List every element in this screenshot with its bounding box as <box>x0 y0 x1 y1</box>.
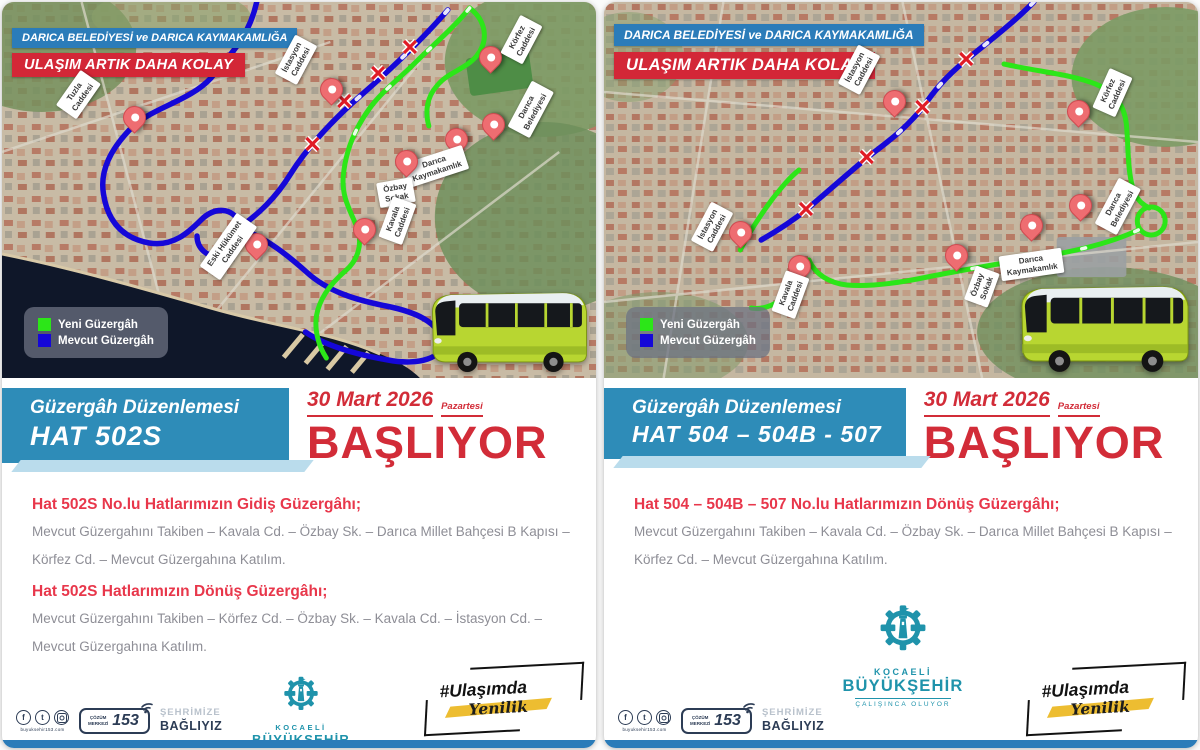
start-date: 30 Mart 2026 <box>307 388 433 417</box>
announcement-banner: Güzergâh Düzenlemesi HAT 504 – 504B - 50… <box>604 378 1198 470</box>
instagram-icon <box>54 710 69 725</box>
flyer-hat-504-504b-507: DARICA BELEDİYESİ ve DARICA KAYMAKAMLIĞA… <box>604 2 1198 748</box>
new-route-swatch <box>640 318 653 331</box>
call-center-number: 153 <box>714 713 741 729</box>
facebook-icon: f <box>618 710 633 725</box>
new-route-swatch <box>38 318 51 331</box>
call-center-label: ÇÖZÜM MERKEZİ <box>88 715 108 726</box>
flyer-hat-502s: DARICA BELEDİYESİ ve DARICA KAYMAKAMLIĞA… <box>2 2 596 748</box>
route-map-502s: DARICA BELEDİYESİ ve DARICA KAYMAKAMLIĞA… <box>2 2 596 378</box>
legend-existing-label: Mevcut Güzergâh <box>58 335 154 347</box>
start-date-block: 30 Mart 2026 Pazartesi BAŞLIYOR <box>924 388 1165 465</box>
kocaeli-logo-icon <box>868 595 938 665</box>
starting-label: BAŞLIYOR <box>924 420 1165 465</box>
start-weekday: Pazartesi <box>441 401 483 417</box>
route-banner-box: Güzergâh Düzenlemesi HAT 502S <box>2 388 289 463</box>
bus-illustration <box>1016 277 1194 376</box>
footer-city-line1: ŞEHRİMİZE <box>160 708 222 719</box>
announcement-banner: Güzergâh Düzenlemesi HAT 502S 30 Mart 20… <box>2 378 596 470</box>
existing-route-swatch <box>38 334 51 347</box>
twitter-icon: t <box>35 710 50 725</box>
footer: f t buyuksehir153.com ÇÖZÜM MERKEZİ 153 … <box>2 708 222 734</box>
existing-route-swatch <box>640 334 653 347</box>
section-body: Mevcut Güzergahını Takiben – Kavala Cd. … <box>634 518 1172 573</box>
footer-city-line2: BAĞLIYIZ <box>160 719 222 733</box>
facebook-icon: f <box>16 710 31 725</box>
logo-city-name: KOCAELİ <box>275 723 326 732</box>
slogan-banner: ULAŞIM ARTIK DAHA KOLAY <box>614 52 875 79</box>
starting-label: BAŞLIYOR <box>307 420 548 465</box>
footer-city-line2: BAĞLIYIZ <box>762 719 824 733</box>
start-date-block: 30 Mart 2026 Pazartesi BAŞLIYOR <box>307 388 548 465</box>
section-heading: Hat 502S Hatlarımızın Dönüş Güzergâhı; <box>32 583 570 601</box>
start-date: 30 Mart 2026 <box>924 388 1050 417</box>
start-weekday: Pazartesi <box>1058 401 1100 417</box>
bus-illustration <box>427 284 592 376</box>
kocaeli-logo-icon <box>275 669 327 721</box>
call-center-number: 153 <box>112 713 139 729</box>
logo-city-name: KOCAELİ <box>874 667 932 677</box>
call-center-label: ÇÖZÜM MERKEZİ <box>690 715 710 726</box>
municipality-banner: DARICA BELEDİYESİ ve DARICA KAYMAKAMLIĞA <box>614 24 924 46</box>
wifi-signal-icon <box>742 702 756 714</box>
section-body: Mevcut Güzergahını Takiben – Körfez Cd. … <box>32 605 570 660</box>
chevron-icon: » <box>454 704 461 718</box>
twitter-icon: t <box>637 710 652 725</box>
slogan-banner: ULAŞIM ARTIK DAHA KOLAY <box>12 53 245 77</box>
footer: f t buyuksehir153.com ÇÖZÜM MERKEZİ 153 … <box>604 708 824 734</box>
section-heading: Hat 504 – 504B – 507 No.lu Hatlarımızın … <box>634 496 1172 514</box>
instagram-icon <box>656 710 671 725</box>
section-heading: Hat 502S No.lu Hatlarımızın Gidiş Güzerg… <box>32 496 570 514</box>
section-body: Mevcut Güzergahını Takiben – Kavala Cd. … <box>32 518 570 573</box>
route-code: HAT 504 – 504B - 507 <box>632 421 882 448</box>
call-center-badge: ÇÖZÜM MERKEZİ 153 <box>681 708 752 734</box>
logo-tagline: ÇALIŞINCA OLUYOR <box>855 698 950 708</box>
banner-title: Güzergâh Düzenlemesi <box>632 397 882 419</box>
legend-new-label: Yeni Güzergâh <box>58 319 138 331</box>
banner-title: Güzergâh Düzenlemesi <box>30 397 265 419</box>
legend-new-label: Yeni Güzergâh <box>660 319 740 331</box>
map-legend: Yeni Güzergâh Mevcut Güzergâh <box>626 307 770 358</box>
municipality-banner: DARICA BELEDİYESİ ve DARICA KAYMAKAMLIĞA <box>12 28 297 48</box>
hashtag-badge: #Ulaşımda » Yenilik <box>1026 664 1185 734</box>
legend-existing-label: Mevcut Güzergâh <box>660 335 756 347</box>
map-legend: Yeni Güzergâh Mevcut Güzergâh <box>24 307 168 358</box>
route-code: HAT 502S <box>30 421 265 452</box>
wifi-signal-icon <box>140 702 154 714</box>
logo-muni-name: BÜYÜKŞEHİR <box>842 677 963 696</box>
footer-url: buyuksehir153.com <box>622 727 666 732</box>
route-banner-box: Güzergâh Düzenlemesi HAT 504 – 504B - 50… <box>604 388 906 459</box>
page: DARICA BELEDİYESİ ve DARICA KAYMAKAMLIĞA… <box>0 0 1200 750</box>
footer-city-line1: ŞEHRİMİZE <box>762 708 824 719</box>
call-center-badge: ÇÖZÜM MERKEZİ 153 <box>79 708 150 734</box>
hashtag-line2: Yenilik <box>468 697 528 719</box>
route-map-504: DARICA BELEDİYESİ ve DARICA KAYMAKAMLIĞA… <box>604 2 1198 378</box>
chevron-icon: » <box>1056 704 1063 718</box>
footer-url: buyuksehir153.com <box>20 727 64 732</box>
bottom-blue-bar <box>2 740 596 748</box>
hashtag-badge: #Ulaşımda » Yenilik <box>424 664 583 734</box>
hashtag-line2: Yenilik <box>1070 697 1130 719</box>
bottom-blue-bar <box>604 740 1198 748</box>
